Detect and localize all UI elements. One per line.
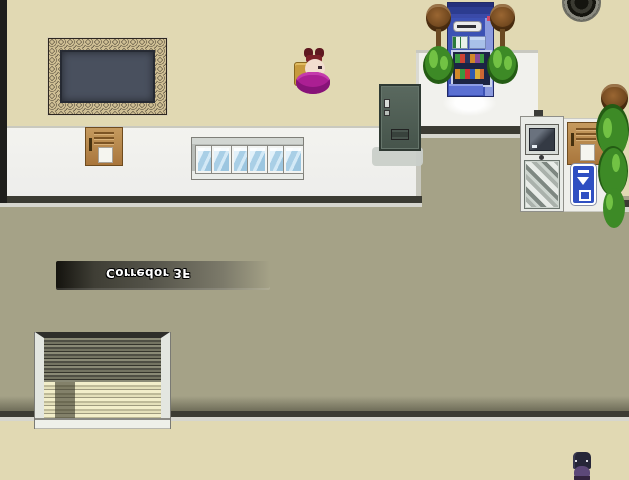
game-viewport[interactable]: Corredor 3F	[0, 0, 629, 480]
elevator-door-panel[interactable]	[524, 160, 560, 209]
vending-coin-slot	[453, 21, 482, 32]
monitor-screen	[529, 128, 555, 151]
vending-slot-opening	[457, 25, 476, 28]
plant-foliage	[603, 118, 612, 138]
player-character[interactable]	[294, 46, 332, 94]
elevator-unit[interactable]	[520, 116, 564, 212]
elevator-sign	[571, 164, 596, 205]
window-pane	[284, 146, 303, 173]
locker-keyhole	[89, 138, 92, 151]
npc-hair	[574, 476, 590, 480]
wooden-locker-left[interactable]	[85, 127, 123, 166]
sign-box-glyph	[579, 190, 591, 201]
corridor-sign: Corredor 3F	[56, 261, 270, 290]
plant-pot	[490, 4, 515, 32]
kiosk-base-light-line	[416, 134, 524, 138]
plant-foliage	[493, 50, 502, 68]
lower-room-floor	[0, 421, 629, 480]
shutter-bottom-rail	[35, 418, 170, 429]
window-pane	[212, 146, 231, 173]
npc-detail	[575, 460, 577, 462]
plant-foliage	[606, 194, 613, 210]
locker-vent	[576, 138, 596, 140]
door-handle-lower	[384, 110, 390, 116]
plant-foliage	[612, 154, 620, 172]
potted-plant-left	[423, 2, 454, 86]
wall-base-light-line	[0, 203, 422, 207]
garage-shutter-door[interactable]	[35, 332, 170, 429]
vending-price-display	[452, 36, 468, 49]
wall-windows	[191, 137, 304, 180]
vending-products-row	[455, 54, 484, 63]
map-left-edge	[0, 0, 7, 203]
vending-product-window	[451, 50, 492, 87]
locker-vent	[576, 133, 596, 135]
plant-foliage	[429, 50, 438, 68]
locker-vent	[94, 142, 114, 144]
screen-glare	[532, 145, 537, 148]
elevator-monitor[interactable]	[525, 124, 559, 155]
plant-foliage	[504, 56, 512, 70]
shutter-upper-slats	[44, 338, 161, 382]
locker-vent	[576, 128, 596, 130]
potted-plant-right	[487, 2, 518, 86]
vending-top-panel	[449, 84, 483, 95]
sign-arrow-glyph	[577, 177, 589, 185]
wall-base-dark-line	[0, 196, 422, 203]
door-handle	[384, 99, 390, 108]
window-pane	[248, 146, 267, 173]
locker-vent	[94, 137, 114, 139]
floor-hatch[interactable]	[562, 0, 601, 22]
plant-foliage	[440, 56, 448, 70]
shutter-shadow-column	[55, 382, 75, 418]
npc-character[interactable]	[565, 452, 599, 480]
locker-vent	[94, 132, 114, 134]
vending-products-row	[455, 69, 484, 79]
blackboard-surface	[60, 50, 155, 103]
ornate-blackboard[interactable]	[48, 38, 167, 115]
vending-info-panel	[469, 36, 486, 49]
npc-detail	[586, 460, 588, 462]
kiosk-base-dark-line	[416, 126, 524, 134]
character-eye	[318, 66, 322, 69]
door-vent	[391, 129, 409, 140]
tall-plant	[594, 84, 629, 242]
locker-paper	[98, 147, 113, 163]
plant-pot	[426, 4, 451, 32]
corridor-sign-label: Corredor 3F	[106, 266, 191, 280]
character-hair	[296, 72, 330, 94]
locker-paper	[580, 144, 595, 161]
locker-keyhole	[571, 133, 574, 146]
sign-bar-glyph	[578, 170, 589, 173]
metal-door[interactable]	[379, 84, 421, 151]
